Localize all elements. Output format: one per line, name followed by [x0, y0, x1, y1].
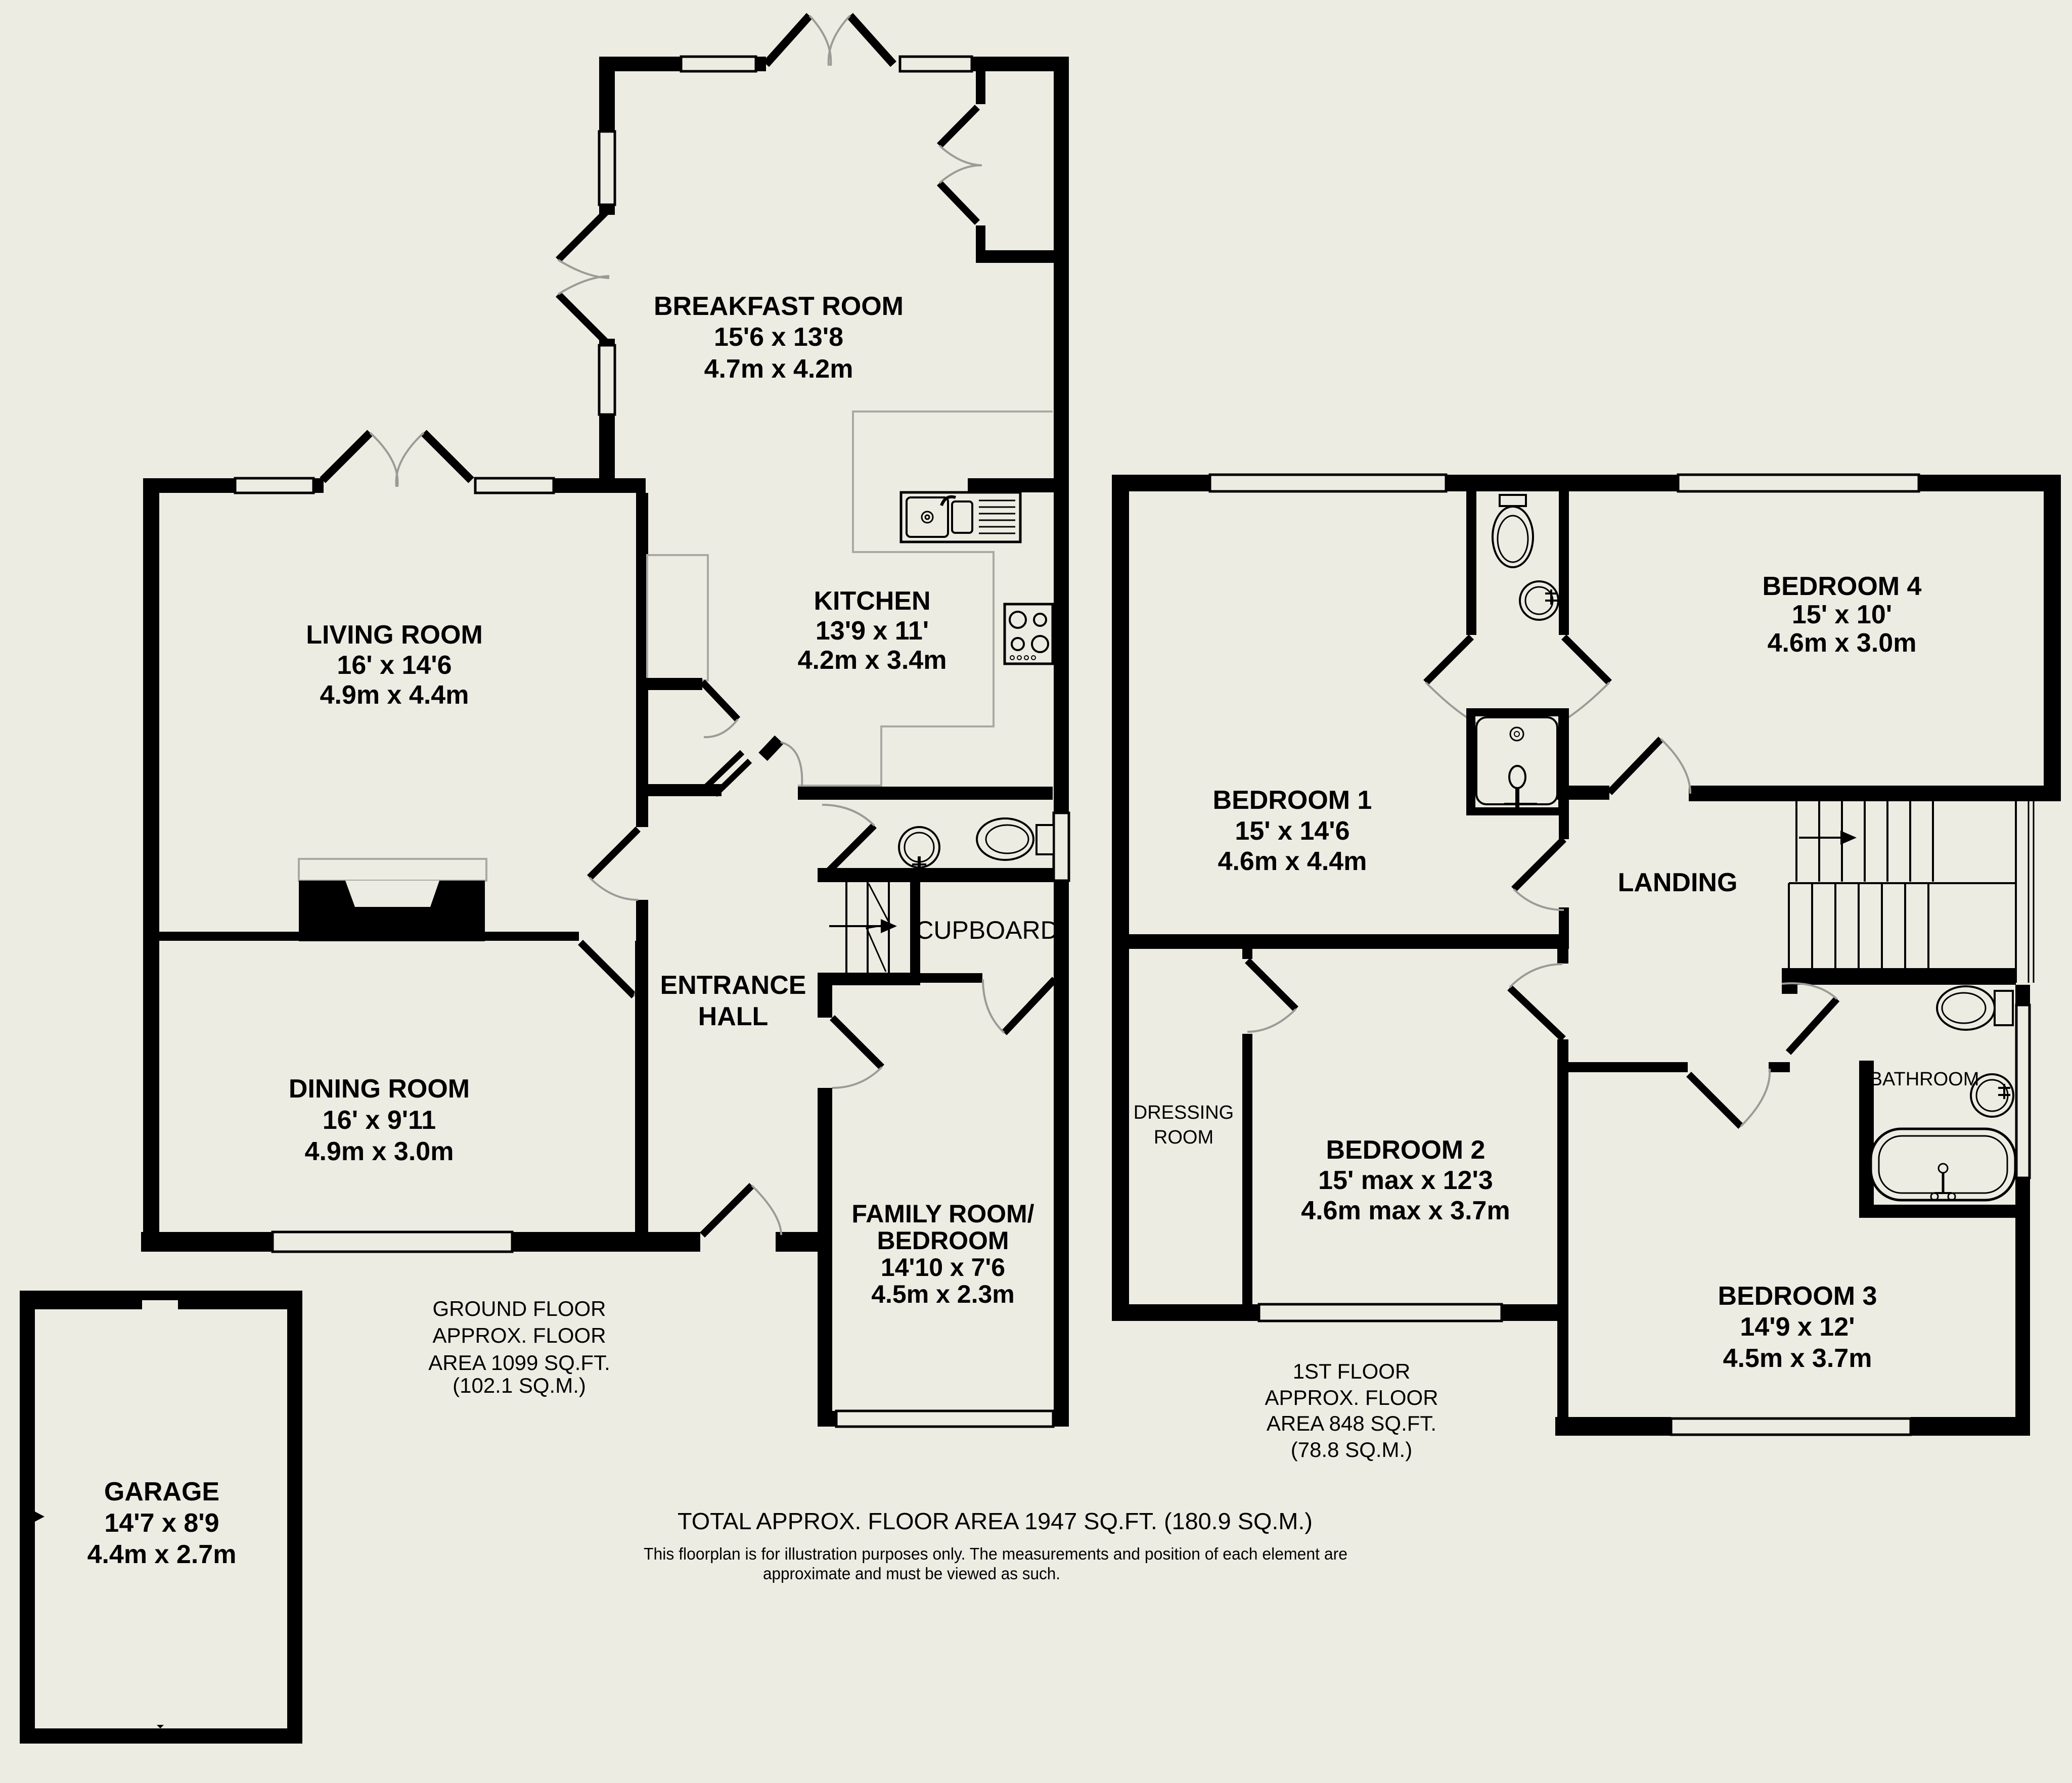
svg-text:14'10 x 7'6: 14'10 x 7'6: [881, 1253, 1005, 1282]
svg-text:14'7 x 8'9: 14'7 x 8'9: [104, 1508, 219, 1538]
svg-text:4.5m x 3.7m: 4.5m x 3.7m: [1723, 1344, 1872, 1373]
svg-text:DRESSING: DRESSING: [1134, 1102, 1234, 1123]
svg-text:4.2m x 3.4m: 4.2m x 3.4m: [798, 646, 947, 675]
svg-text:BEDROOM: BEDROOM: [877, 1226, 1009, 1255]
svg-text:4.6m x 4.4m: 4.6m x 4.4m: [1218, 847, 1367, 876]
svg-text:4.6m x 3.0m: 4.6m x 3.0m: [1768, 628, 1917, 658]
svg-text:ROOM: ROOM: [1154, 1127, 1213, 1148]
svg-text:BEDROOM 3: BEDROOM 3: [1718, 1282, 1877, 1311]
svg-text:AREA 848 SQ.FT.: AREA 848 SQ.FT.: [1267, 1411, 1436, 1435]
svg-text:16' x 9'11: 16' x 9'11: [323, 1106, 436, 1135]
svg-text:APPROX. FLOOR: APPROX. FLOOR: [1265, 1386, 1438, 1409]
svg-text:15' x 10': 15' x 10': [1792, 600, 1892, 629]
svg-text:4.9m x 3.0m: 4.9m x 3.0m: [305, 1137, 454, 1166]
svg-text:15' x 14'6: 15' x 14'6: [1235, 816, 1349, 846]
svg-text:AREA 1099 SQ.FT.: AREA 1099 SQ.FT.: [428, 1351, 610, 1375]
svg-text:(102.1 SQ.M.): (102.1 SQ.M.): [453, 1374, 586, 1397]
svg-text:BATHROOM: BATHROOM: [1870, 1069, 1979, 1090]
svg-text:BEDROOM 1: BEDROOM 1: [1213, 786, 1372, 815]
svg-text:LANDING: LANDING: [1618, 868, 1738, 897]
svg-text:BEDROOM 4: BEDROOM 4: [1763, 572, 1922, 601]
svg-text:LIVING ROOM: LIVING ROOM: [306, 620, 483, 650]
svg-text:GROUND FLOOR: GROUND FLOOR: [432, 1297, 606, 1320]
svg-text:DINING ROOM: DINING ROOM: [289, 1074, 470, 1104]
svg-text:BREAKFAST ROOM: BREAKFAST ROOM: [654, 292, 904, 321]
svg-text:ENTRANCE: ENTRANCE: [660, 971, 806, 1000]
svg-text:KITCHEN: KITCHEN: [814, 586, 930, 616]
svg-text:(78.8 SQ.M.): (78.8 SQ.M.): [1291, 1438, 1412, 1461]
svg-text:FAMILY ROOM/: FAMILY ROOM/: [851, 1200, 1034, 1228]
svg-text:CUPBOARD: CUPBOARD: [915, 916, 1058, 944]
svg-text:4.4m x 2.7m: 4.4m x 2.7m: [87, 1540, 237, 1569]
svg-text:GARAGE: GARAGE: [104, 1477, 219, 1506]
svg-text:BEDROOM 2: BEDROOM 2: [1326, 1135, 1485, 1165]
svg-text:HALL: HALL: [698, 1002, 769, 1031]
svg-text:15' max x 12'3: 15' max x 12'3: [1318, 1166, 1493, 1195]
svg-text:4.5m x 2.3m: 4.5m x 2.3m: [871, 1280, 1015, 1308]
svg-text:approximate and must be viewed: approximate and must be viewed as such.: [763, 1564, 1060, 1583]
svg-text:13'9 x 11': 13'9 x 11': [816, 616, 929, 646]
svg-text:15'6 x 13'8: 15'6 x 13'8: [714, 323, 843, 352]
svg-text:4.6m max x 3.7m: 4.6m max x 3.7m: [1301, 1196, 1510, 1225]
svg-text:4.7m x 4.2m: 4.7m x 4.2m: [704, 354, 853, 384]
svg-text:14'9 x 12': 14'9 x 12': [1740, 1312, 1855, 1342]
svg-text:TOTAL APPROX. FLOOR AREA 1947: TOTAL APPROX. FLOOR AREA 1947 SQ.FT. (18…: [678, 1508, 1313, 1534]
svg-text:APPROX. FLOOR: APPROX. FLOOR: [432, 1323, 606, 1347]
svg-text:1ST FLOOR: 1ST FLOOR: [1293, 1359, 1411, 1383]
svg-text:4.9m x 4.4m: 4.9m x 4.4m: [320, 680, 469, 710]
svg-text:This floorplan is for illustra: This floorplan is for illustration purpo…: [644, 1544, 1347, 1563]
svg-text:16' x 14'6: 16' x 14'6: [337, 651, 452, 680]
